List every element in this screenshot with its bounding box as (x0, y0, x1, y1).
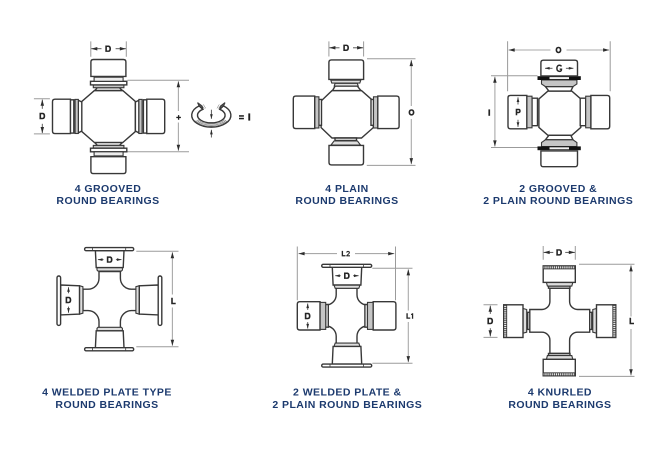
svg-text:4 PLAIN: 4 PLAIN (325, 183, 368, 195)
svg-text:4 GROOVED: 4 GROOVED (75, 183, 141, 195)
svg-text:ROUND BEARINGS: ROUND BEARINGS (508, 399, 611, 411)
svg-text:4 WELDED PLATE TYPE: 4 WELDED PLATE TYPE (42, 387, 172, 399)
svg-text:4 KNURLED: 4 KNURLED (528, 387, 592, 399)
svg-text:2 GROOVED &: 2 GROOVED & (519, 183, 597, 195)
svg-text:ROUND BEARINGS: ROUND BEARINGS (55, 399, 158, 411)
svg-text:ROUND BEARINGS: ROUND BEARINGS (295, 195, 398, 207)
svg-text:2 PLAIN ROUND BEARINGS: 2 PLAIN ROUND BEARINGS (272, 399, 422, 411)
svg-text:2 WELDED PLATE &: 2 WELDED PLATE & (293, 387, 402, 399)
svg-text:2 PLAIN ROUND BEARINGS: 2 PLAIN ROUND BEARINGS (483, 195, 633, 207)
svg-text:ROUND BEARINGS: ROUND BEARINGS (56, 195, 159, 207)
